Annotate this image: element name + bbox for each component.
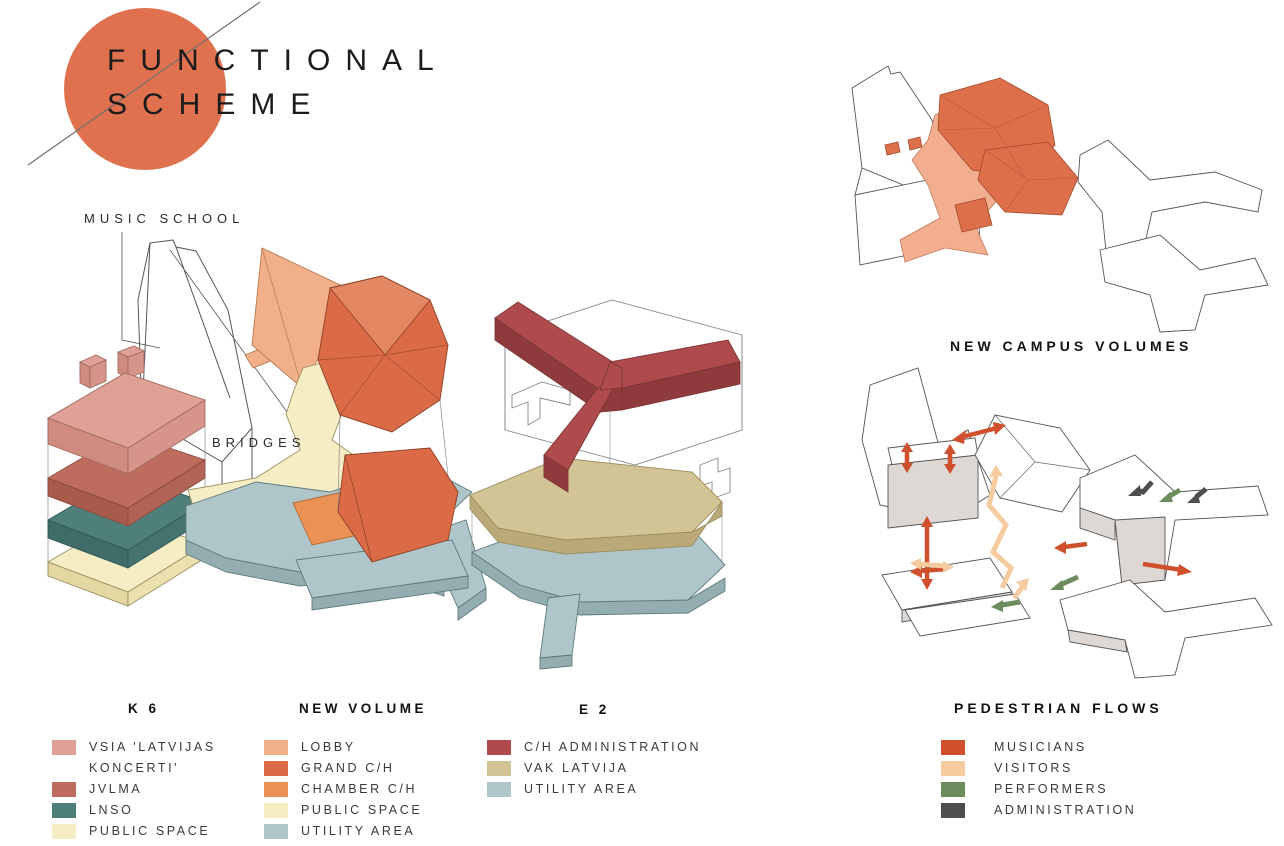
legend-pedestrian-flows: MUSICIANS VISITORS PERFORMERS ADMINISTRA… <box>941 737 1136 821</box>
legend-new-volume: LOBBY GRAND C/H CHAMBER C/H PUBLIC SPACE… <box>264 737 422 842</box>
page-title-line2: SCHEME <box>107 88 325 122</box>
legend-item-label: ADMINISTRATION <box>994 800 1136 821</box>
new-campus-volumes-diagram <box>852 66 1268 332</box>
legend-item-label: GRAND C/H <box>301 758 395 779</box>
legend-swatch-lobby <box>264 740 288 755</box>
legend-swatch-chamber-ch <box>264 782 288 797</box>
k6-stack <box>48 346 205 606</box>
legend-item: MUSICIANS <box>941 737 1136 758</box>
new-volume-cluster <box>186 248 486 620</box>
legend-item: PUBLIC SPACE <box>264 800 422 821</box>
legend-item: PERFORMERS <box>941 779 1136 800</box>
bridges-label: BRIDGES <box>212 435 306 450</box>
legend-item: UTILITY AREA <box>487 779 701 800</box>
e2-diagram <box>470 300 742 669</box>
legend-item: ADMINISTRATION <box>941 800 1136 821</box>
legend-item-label: VAK LATVIJA <box>524 758 629 779</box>
legend-swatch-lnso <box>52 803 76 818</box>
legend-swatch-performers <box>941 782 965 797</box>
functional-scheme-board: FUNCTIONAL SCHEME MUSIC SCHOOL BRIDGES N… <box>0 0 1284 846</box>
legend-swatch-public-space-nv <box>264 803 288 818</box>
legend-swatch-grand-ch <box>264 761 288 776</box>
legend-swatch-utility <box>264 824 288 839</box>
legend-swatch-ch-admin <box>487 740 511 755</box>
legend-item-label: LOBBY <box>301 737 356 758</box>
music-school-label: MUSIC SCHOOL <box>84 211 244 226</box>
legend-swatch-utility-e2 <box>487 782 511 797</box>
legend-item-label: PUBLIC SPACE <box>89 821 210 842</box>
legend-item-label: VSIA 'LATVIJAS KONCERTI' <box>89 737 216 779</box>
legend-swatch-jvlma <box>52 782 76 797</box>
legend-item: CHAMBER C/H <box>264 779 422 800</box>
legend-item: VAK LATVIJA <box>487 758 701 779</box>
pedestrian-flows-diagram <box>862 368 1272 678</box>
legend-swatch-administration <box>941 803 965 818</box>
legend-e2-title: E 2 <box>579 702 610 717</box>
legend-item: VSIA 'LATVIJAS KONCERTI' <box>52 737 216 779</box>
new-campus-volumes-caption: NEW CAMPUS VOLUMES <box>950 338 1192 354</box>
pedestrian-flows-caption: PEDESTRIAN FLOWS <box>954 700 1163 716</box>
legend-item: UTILITY AREA <box>264 821 422 842</box>
accent-circle-group <box>28 2 260 170</box>
legend-swatch-vsia <box>52 740 76 755</box>
e2-vak-slab <box>470 458 722 554</box>
legend-item-label: PUBLIC SPACE <box>301 800 422 821</box>
legend-item: JVLMA <box>52 779 216 800</box>
page-title-line1: FUNCTIONAL <box>107 44 449 78</box>
diagram-artwork <box>0 0 1284 846</box>
legend-item-label: MUSICIANS <box>994 737 1087 758</box>
legend-swatch-public-space <box>52 824 76 839</box>
legend-item: LOBBY <box>264 737 422 758</box>
legend-k6-title: K 6 <box>128 701 160 716</box>
legend-item-label: JVLMA <box>89 779 142 800</box>
legend-item: C/H ADMINISTRATION <box>487 737 701 758</box>
legend-item-label: UTILITY AREA <box>301 821 415 842</box>
legend-item: VISITORS <box>941 758 1136 779</box>
legend-swatch-vak <box>487 761 511 776</box>
legend-item-label: PERFORMERS <box>994 779 1108 800</box>
legend-item-label: UTILITY AREA <box>524 779 638 800</box>
legend-swatch-musicians <box>941 740 965 755</box>
legend-item-label: C/H ADMINISTRATION <box>524 737 701 758</box>
legend-e2: C/H ADMINISTRATION VAK LATVIJA UTILITY A… <box>487 737 701 800</box>
legend-k6: VSIA 'LATVIJAS KONCERTI' JVLMA LNSO PUBL… <box>52 737 216 842</box>
legend-item: LNSO <box>52 800 216 821</box>
legend-item-label: LNSO <box>89 800 133 821</box>
legend-item-label: VISITORS <box>994 758 1073 779</box>
legend-swatch-visitors <box>941 761 965 776</box>
legend-item: GRAND C/H <box>264 758 422 779</box>
legend-item: PUBLIC SPACE <box>52 821 216 842</box>
legend-item-label: CHAMBER C/H <box>301 779 417 800</box>
legend-new-volume-title: NEW VOLUME <box>299 701 427 716</box>
